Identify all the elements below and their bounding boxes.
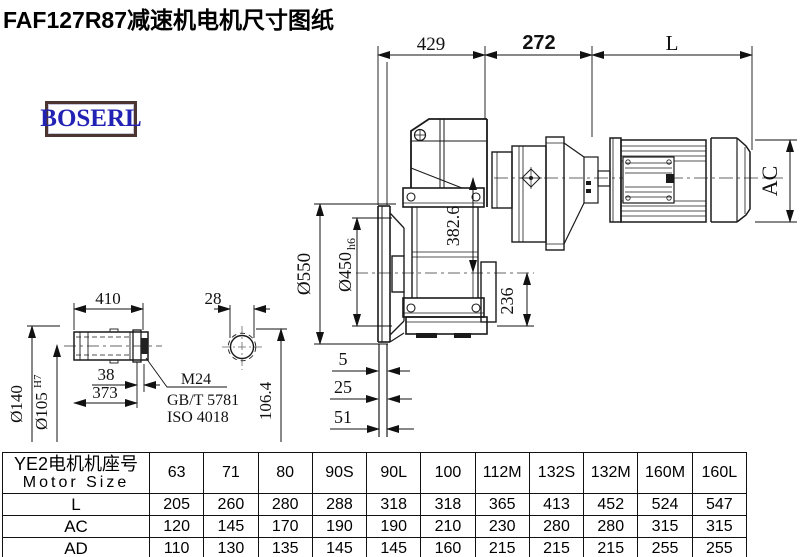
table-cell: 365 xyxy=(475,494,529,516)
dim-label-28: 28 xyxy=(205,289,222,308)
table-cell: 215 xyxy=(529,538,583,557)
svg-text:H7: H7 xyxy=(32,374,44,388)
table-cell: 120 xyxy=(150,516,204,538)
table-cell: 280 xyxy=(258,494,312,516)
brand-logo-text: BOSERL xyxy=(40,105,141,133)
svg-text:Ø105: Ø105 xyxy=(32,392,51,430)
table-cell: 547 xyxy=(692,494,746,516)
motor xyxy=(610,138,750,222)
table-row-L: L 205 260 280 288 318 318 365 413 452 52… xyxy=(3,494,747,516)
row-label: AC xyxy=(3,516,150,538)
col-header: 90L xyxy=(367,453,421,494)
table-cell: 315 xyxy=(692,516,746,538)
bolt-icon xyxy=(472,304,480,312)
table-cell: 280 xyxy=(584,516,638,538)
table-cell: 288 xyxy=(312,494,366,516)
output-flange xyxy=(378,206,404,437)
table-cell: 215 xyxy=(584,538,638,557)
col-header: 63 xyxy=(150,453,204,494)
table-cell: 215 xyxy=(475,538,529,557)
table-cell: 190 xyxy=(367,516,421,538)
page: 429 272 L Ø550 Ø450 h6 382.6 236 5 25 51… xyxy=(0,0,800,557)
dim-label-38: 38 xyxy=(98,365,115,384)
table-row-AD: AD 110 130 135 145 145 160 215 215 215 2… xyxy=(3,538,747,557)
dim-label-272: 272 xyxy=(522,32,555,54)
table-cell: 110 xyxy=(150,538,204,557)
table-cell: 413 xyxy=(529,494,583,516)
table-cell: 318 xyxy=(367,494,421,516)
svg-text:Ø450: Ø450 xyxy=(335,252,355,292)
table-header-en: Motor Size xyxy=(3,474,149,492)
dim-label-106-4: 106.4 xyxy=(256,381,275,420)
table-cell: 130 xyxy=(204,538,258,557)
table-cell: 135 xyxy=(258,538,312,557)
table-row-AC: AC 120 145 170 190 190 210 230 280 280 3… xyxy=(3,516,747,538)
page-title: FAF127R87减速机电机尺寸图纸 xyxy=(3,1,334,35)
thread-label-M24: M24 xyxy=(181,371,211,388)
dim-label-5: 5 xyxy=(339,349,348,369)
table-cell: 318 xyxy=(421,494,475,516)
table-header-cn: YE2电机机座号 xyxy=(3,454,149,474)
brand-logo: BOSERL xyxy=(45,101,137,137)
dim-label-L: L xyxy=(666,31,679,55)
dim-label-51: 51 xyxy=(334,407,352,427)
table-cell: 524 xyxy=(638,494,692,516)
table-cell: 255 xyxy=(638,538,692,557)
svg-text:h6: h6 xyxy=(344,238,358,250)
table-cell: 280 xyxy=(529,516,583,538)
col-header: 100 xyxy=(421,453,475,494)
table-cell: 255 xyxy=(692,538,746,557)
fan-cover xyxy=(737,138,750,222)
bolt-icon xyxy=(407,193,415,201)
table-cell: 190 xyxy=(312,516,366,538)
dim-label-410: 410 xyxy=(95,289,121,308)
standard-label-gbt: GB/T 5781 xyxy=(167,392,239,409)
technical-drawing: 429 272 L Ø550 Ø450 h6 382.6 236 5 25 51… xyxy=(0,0,800,450)
motor-adapter xyxy=(492,137,610,250)
table-header-row: YE2电机机座号 Motor Size 63 71 80 90S 90L 100… xyxy=(3,453,747,494)
table-cell: 160 xyxy=(421,538,475,557)
dim-label-236: 236 xyxy=(497,288,517,315)
table-cell: 230 xyxy=(475,516,529,538)
col-header: 160M xyxy=(638,453,692,494)
dim-label-dia105H7: Ø105 H7 xyxy=(32,374,51,430)
table-cell: 452 xyxy=(584,494,638,516)
col-header: 132S xyxy=(529,453,583,494)
col-header: 90S xyxy=(312,453,366,494)
table-cell: 205 xyxy=(150,494,204,516)
table-cell: 145 xyxy=(204,516,258,538)
motor-size-table: YE2电机机座号 Motor Size 63 71 80 90S 90L 100… xyxy=(2,452,747,557)
dim-label-429: 429 xyxy=(417,34,446,55)
dim-label-382-6: 382.6 xyxy=(443,206,463,247)
standard-label-iso: ISO 4018 xyxy=(167,409,229,426)
dim-label-dia550: Ø550 xyxy=(294,253,315,295)
row-label: L xyxy=(3,494,150,516)
col-header: 71 xyxy=(204,453,258,494)
col-header: 112M xyxy=(475,453,529,494)
table-cell: 210 xyxy=(421,516,475,538)
dim-label-25: 25 xyxy=(334,377,352,397)
col-header: 160L xyxy=(692,453,746,494)
dim-label-373: 373 xyxy=(92,383,118,402)
dim-label-dia140: Ø140 xyxy=(7,385,26,423)
table-cell: 260 xyxy=(204,494,258,516)
table-cell: 170 xyxy=(258,516,312,538)
dim-label-dia450h6: Ø450 h6 xyxy=(335,238,358,292)
dim-label-AC: AC xyxy=(757,166,782,197)
col-header: 132M xyxy=(584,453,638,494)
col-header: 80 xyxy=(258,453,312,494)
table-cell: 315 xyxy=(638,516,692,538)
table-cell: 145 xyxy=(312,538,366,557)
bolt-icon xyxy=(407,304,415,312)
row-label: AD xyxy=(3,538,150,557)
table-cell: 145 xyxy=(367,538,421,557)
table-header-motor-size: YE2电机机座号 Motor Size xyxy=(3,453,150,494)
